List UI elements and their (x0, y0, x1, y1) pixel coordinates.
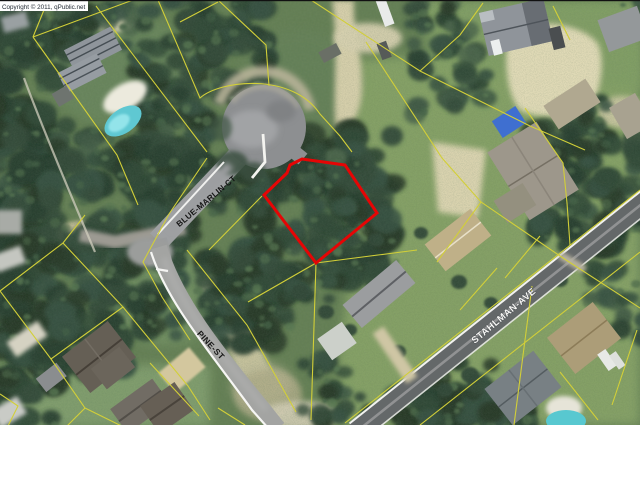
svg-text:Copyright © 2011, qPublic.net: Copyright © 2011, qPublic.net (2, 3, 86, 11)
